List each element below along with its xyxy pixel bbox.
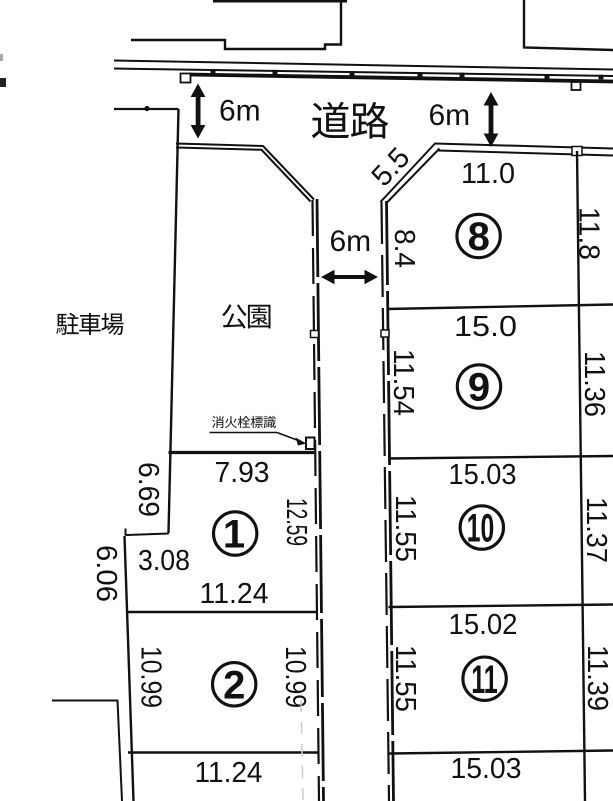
svg-text:11.54: 11.54 — [387, 349, 419, 416]
svg-text:6m: 6m — [219, 95, 261, 128]
svg-text:8.4: 8.4 — [388, 229, 420, 268]
svg-text:11: 11 — [471, 658, 498, 702]
svg-text:6m: 6m — [330, 225, 372, 258]
svg-text:9: 9 — [468, 366, 490, 410]
svg-text:6.69: 6.69 — [132, 462, 164, 517]
svg-text:15.0: 15.0 — [454, 311, 517, 343]
svg-text:6.06: 6.06 — [90, 545, 122, 602]
svg-text:11.37: 11.37 — [580, 497, 612, 563]
svg-text:10.99: 10.99 — [279, 646, 311, 708]
svg-text:10: 10 — [467, 507, 495, 551]
svg-text:11.8: 11.8 — [573, 207, 605, 260]
svg-text:11.39: 11.39 — [581, 645, 613, 711]
svg-text:11.55: 11.55 — [389, 645, 421, 712]
svg-text:11.55: 11.55 — [389, 495, 421, 562]
svg-text:11.24: 11.24 — [195, 757, 263, 789]
svg-text:3.08: 3.08 — [138, 545, 190, 577]
svg-text:7.93: 7.93 — [215, 457, 270, 489]
svg-text:11.0: 11.0 — [461, 158, 515, 190]
svg-text:15.02: 15.02 — [449, 609, 518, 641]
svg-text:6m: 6m — [429, 99, 471, 132]
svg-text:15.03: 15.03 — [449, 459, 517, 491]
svg-text:11.24: 11.24 — [200, 578, 269, 610]
svg-text:15.03: 15.03 — [451, 753, 522, 785]
svg-text:11.36: 11.36 — [578, 351, 610, 417]
svg-text:12.59: 12.59 — [280, 498, 312, 546]
svg-text:2: 2 — [223, 664, 245, 708]
svg-text:8: 8 — [468, 215, 490, 259]
svg-text:10.99: 10.99 — [135, 646, 167, 708]
svg-text:1: 1 — [223, 513, 245, 557]
